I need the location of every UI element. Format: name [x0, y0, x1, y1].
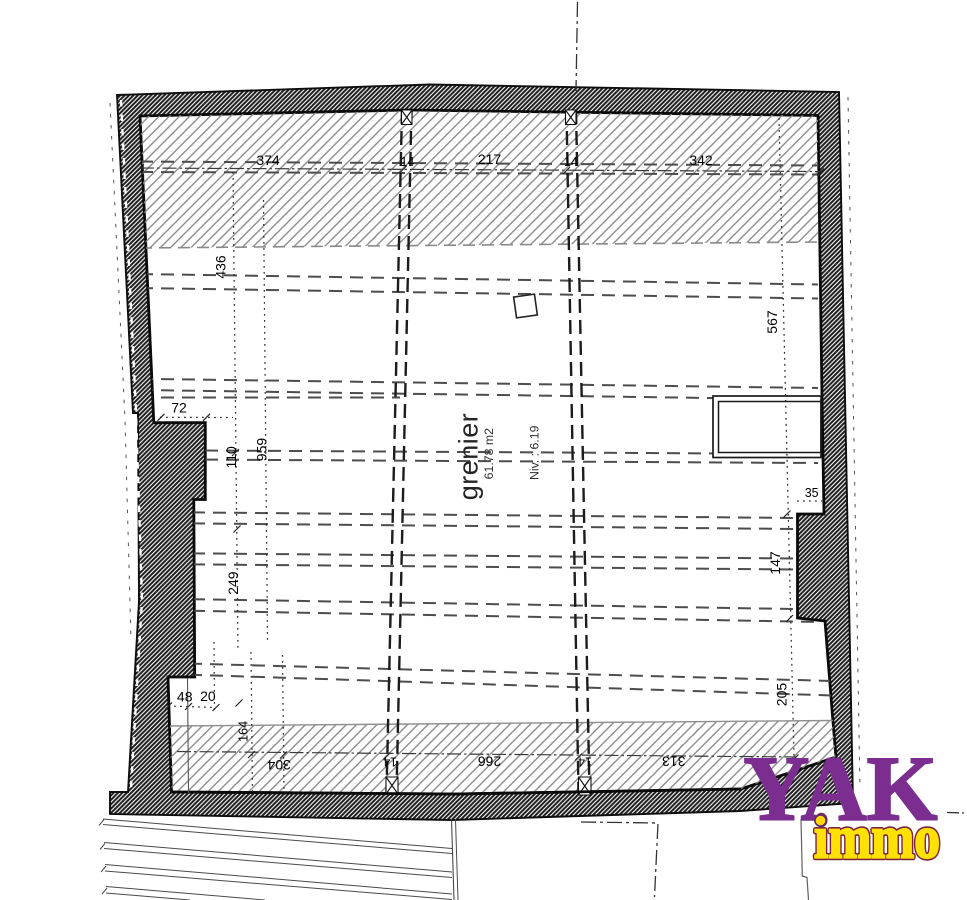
svg-text:313: 313: [662, 754, 686, 770]
svg-text:14: 14: [383, 754, 397, 768]
svg-text:304: 304: [267, 757, 291, 773]
svg-text:14: 14: [400, 155, 414, 169]
svg-text:959: 959: [253, 438, 269, 462]
svg-text:20: 20: [200, 688, 216, 704]
svg-text:35: 35: [805, 486, 819, 500]
svg-text:436: 436: [212, 255, 228, 279]
svg-text:61.78 m2: 61.78 m2: [482, 428, 496, 479]
svg-text:567: 567: [764, 310, 780, 334]
svg-text:72: 72: [171, 400, 187, 416]
svg-text:grenier: grenier: [454, 413, 484, 501]
svg-text:immo: immo: [814, 805, 940, 871]
svg-text:110: 110: [223, 446, 239, 469]
svg-text:249: 249: [225, 571, 241, 595]
svg-text:266: 266: [478, 754, 502, 770]
svg-text:205: 205: [773, 683, 789, 707]
svg-text:48: 48: [177, 689, 193, 705]
svg-text:217: 217: [478, 151, 502, 167]
svg-text:147: 147: [767, 551, 783, 575]
svg-text:164: 164: [237, 721, 251, 742]
svg-text:374: 374: [256, 152, 280, 168]
svg-text:Niv. : 6.19: Niv. : 6.19: [528, 425, 542, 480]
svg-text:342: 342: [689, 152, 713, 168]
svg-text:14: 14: [564, 155, 578, 169]
svg-text:14: 14: [578, 754, 592, 768]
